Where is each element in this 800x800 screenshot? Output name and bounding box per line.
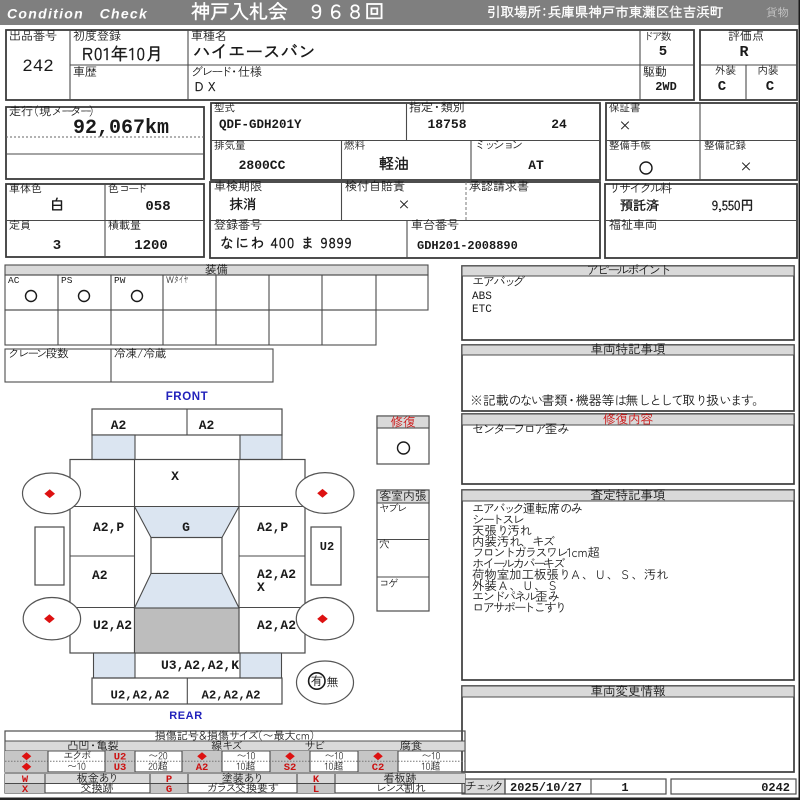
svg-text:QDF-GDH201Y: QDF-GDH201Y	[219, 118, 302, 132]
svg-text:2WD: 2WD	[655, 80, 677, 94]
svg-text:24: 24	[551, 117, 567, 132]
svg-text:X: X	[171, 469, 179, 484]
svg-text:AC: AC	[8, 275, 20, 286]
svg-text:FRONT: FRONT	[166, 391, 209, 403]
svg-text:ETC: ETC	[472, 304, 492, 316]
svg-text:GDH201-2008890: GDH201-2008890	[417, 239, 518, 253]
svg-text:5: 5	[659, 44, 667, 60]
svg-text:U3: U3	[114, 762, 127, 774]
svg-text:AT: AT	[528, 158, 544, 173]
svg-text:3: 3	[53, 238, 61, 254]
svg-text:ABS: ABS	[472, 291, 492, 303]
svg-text:A2,A2: A2,A2	[257, 618, 296, 633]
svg-text:PW: PW	[114, 275, 126, 286]
svg-text:2800CC: 2800CC	[239, 158, 286, 173]
svg-text:PS: PS	[61, 275, 73, 286]
svg-text:R: R	[739, 44, 748, 61]
svg-text:U3,A2,A2,K: U3,A2,A2,K	[161, 658, 239, 673]
svg-text:242: 242	[22, 57, 54, 77]
svg-text:U2: U2	[320, 540, 334, 554]
svg-text:2025/10/27: 2025/10/27	[510, 781, 582, 795]
svg-text:1: 1	[621, 781, 628, 795]
svg-text:U2,A2,A2: U2,A2,A2	[110, 689, 169, 703]
svg-text:X: X	[22, 784, 29, 796]
svg-text:X: X	[257, 580, 265, 595]
svg-text:Condition Check: Condition Check	[7, 6, 148, 22]
svg-text:A2: A2	[111, 418, 127, 433]
svg-text:C: C	[718, 79, 727, 95]
svg-text:S2: S2	[284, 762, 297, 774]
svg-text:REAR: REAR	[169, 710, 203, 722]
svg-text:A2,P: A2,P	[257, 520, 288, 535]
svg-text:A2: A2	[199, 418, 215, 433]
svg-text:L: L	[313, 784, 319, 796]
svg-text:C2: C2	[372, 762, 385, 774]
svg-text:058: 058	[145, 199, 170, 215]
svg-text:0242: 0242	[761, 781, 790, 795]
svg-text:A2,P: A2,P	[93, 520, 124, 535]
svg-text:G: G	[182, 520, 190, 535]
svg-text:G: G	[166, 784, 172, 796]
svg-text:18758: 18758	[427, 117, 466, 132]
svg-text:A2: A2	[196, 762, 209, 774]
svg-text:C: C	[766, 79, 775, 95]
svg-text:A2,A2,A2: A2,A2,A2	[201, 689, 260, 703]
svg-text:1200: 1200	[134, 238, 168, 254]
svg-text:U2,A2: U2,A2	[93, 618, 132, 633]
svg-text:A2: A2	[92, 568, 108, 583]
